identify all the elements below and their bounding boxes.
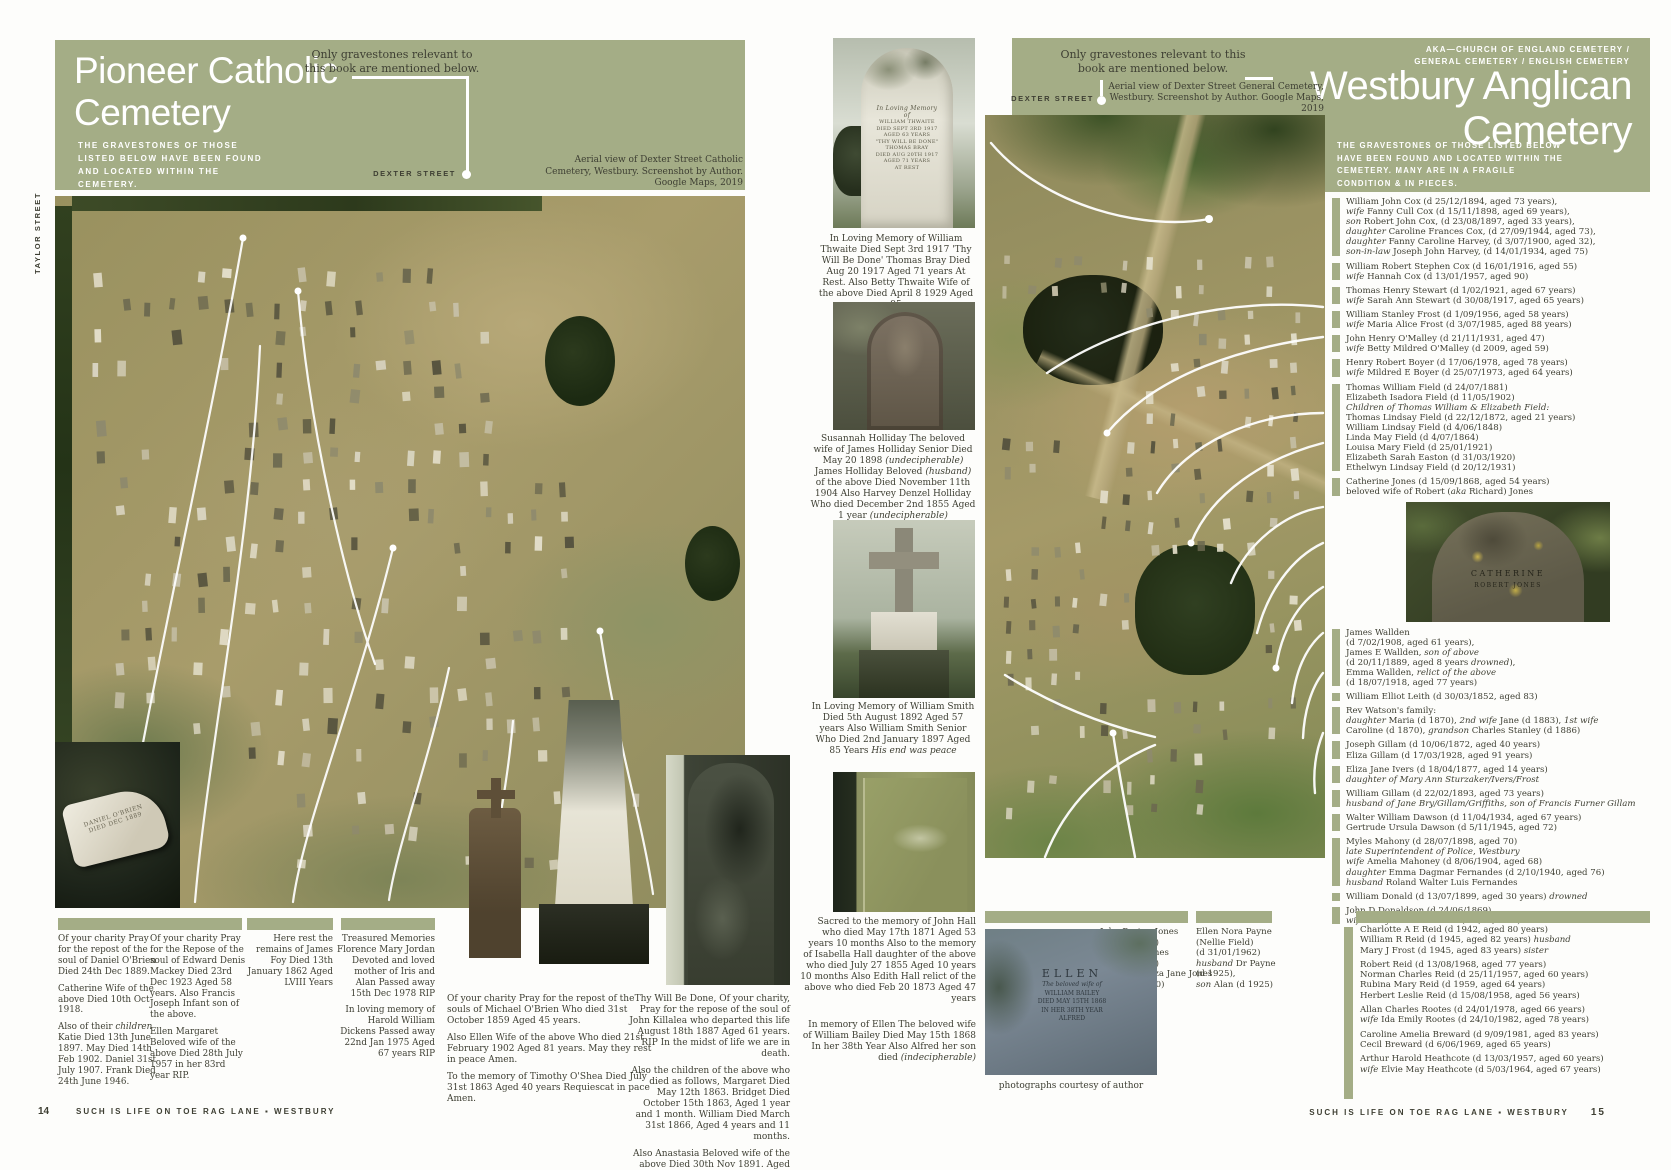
text-line: wife Ida Emily Rootes (d 24/10/1982, age… (1360, 1015, 1650, 1025)
footer-text: SUCH IS LIFE ON TOE RAG LANE ▪ WESTBURY (1309, 1108, 1568, 1117)
caption-bar (985, 911, 1157, 923)
text-line: William R Reid (d 1945, aged 82 years) h… (1360, 935, 1650, 945)
photo-smith-cross (833, 520, 975, 698)
text-line: Gertrude Ursula Dawson (d 5/11/1945, age… (1346, 823, 1652, 833)
text-line: wife Hannah Cox (d 13/01/1957, aged 90) (1346, 272, 1652, 282)
text-line: (d 20/11/1889, aged 8 years drowned), (1346, 658, 1652, 668)
anglican-gravestone-list: William John Cox (d 25/12/1894, aged 73 … (1332, 197, 1652, 930)
paragraph: Also Anastasia Beloved wife of the above… (627, 1149, 790, 1170)
page-number-left: 14 (38, 1106, 49, 1117)
text-line: Elizabeth Sarah Easton (d 31/03/1920) (1346, 453, 1652, 463)
caption-bar (1356, 911, 1650, 923)
text-line: wife Maria Alice Frost (d 3/07/1985, age… (1346, 320, 1652, 330)
text-line: Norman Charles Reid (d 25/11/1957, aged … (1360, 970, 1650, 980)
text-line: Elizabeth Isadora Field (d 11/05/1902) (1346, 393, 1652, 403)
paragraph: Catherine Wife of the above Died 10th Oc… (58, 984, 158, 1017)
caption-foy: Here rest the remains of James Foy Died … (243, 934, 333, 995)
gravestone: ELLENThe beloved wife ofWILLIAM BAILEYDI… (1001, 933, 1143, 1075)
list-entry: Thomas William Field (d 24/07/1881)Eliza… (1332, 383, 1652, 474)
stone-cross (477, 790, 515, 799)
paragraph: Of your charity Pray for the repost of t… (58, 934, 158, 978)
text-line: late Superintendent of Police, Westbury (1346, 847, 1652, 857)
list-entry: Joseph Gillam (d 10/06/1872, aged 40 yea… (1332, 740, 1652, 760)
text-line: IN HER 38TH YEAR (1001, 1007, 1143, 1016)
text-line: Arthur Harold Heathcote (d 13/03/1957, a… (1360, 1054, 1650, 1064)
caption-bar (1196, 911, 1272, 923)
photo-catherine-jones-stone: CATHERINEROBERT JONES (1406, 502, 1610, 622)
photo-daniel-obrien-fallen-stone: DANIEL O'BRIENDIED DEC 1889 (55, 742, 180, 908)
list-entry: William Stanley Frost (d 1/09/1956, aged… (1332, 310, 1652, 330)
right-callout: Only gravestones relevant to this book a… (1058, 48, 1248, 75)
caption-smith: In Loving Memory of William Smith Died 5… (810, 702, 976, 763)
caption-ellen-bailey: In memory of Ellen The beloved wife of W… (798, 1020, 976, 1070)
text-line: wife Fanny Cull Cox (d 15/11/1898, aged … (1346, 207, 1652, 217)
photo-killalea-stone (666, 755, 790, 985)
callout-connector-line (466, 76, 469, 174)
text-line: Ethelwyn Lindsay Field (d 20/12/1931) (1346, 463, 1652, 473)
paragraph: Also of their children Katie Died 13th J… (58, 1022, 158, 1087)
text-line: wife Amelia Mahoney (d 8/06/1904, aged 6… (1346, 857, 1652, 867)
text-line: Cecil Breward (d 6/06/1969, aged 65 year… (1360, 1040, 1650, 1050)
stone-cross (869, 552, 939, 569)
list-entry: William Elliot Leith (d 30/03/1852, aged… (1332, 692, 1652, 702)
text-line: Linda May Field (d 4/07/1864) (1346, 433, 1652, 443)
text-line: (d 1925), (1196, 969, 1276, 980)
text-line: William Lindsay Field (d 4/06/1848) (1346, 423, 1652, 433)
text-line: Walter William Dawson (d 11/04/1934, age… (1346, 813, 1652, 823)
text-line: Thomas Henry Stewart (d 1/02/1921, aged … (1346, 286, 1652, 296)
stone-cross (895, 528, 913, 614)
text-line: ELLEN (1001, 967, 1143, 981)
text-line: husband of Jane Bry/Gillam/Griffiths, so… (1346, 799, 1652, 809)
gravestone-base (871, 612, 937, 652)
text-line: Henry Robert Boyer (d 17/06/1978, aged 7… (1346, 358, 1652, 368)
text-line: William Donald (d 13/07/1899, aged 30 ye… (1346, 892, 1652, 902)
text-line: daughter Emma Dagmar Fernandes (d 2/10/1… (1346, 868, 1652, 878)
text-line: Robert Reid (d 13/08/1968, aged 77 years… (1360, 960, 1650, 970)
paragraph: Of your charity Pray for the Repose of t… (150, 934, 246, 1021)
text-line: wife Betty Mildred O'Malley (d 2009, age… (1346, 344, 1652, 354)
dexter-street-label: DEXTER STREET (372, 169, 456, 178)
text-line: Thomas William Field (d 24/07/1881) (1346, 383, 1652, 393)
text-line: daughter Caroline Frances Cox, (d 27/09/… (1346, 227, 1652, 237)
list-group: Allan Charles Rootes (d 24/01/1978, aged… (1360, 1005, 1650, 1026)
paragraph: Also the children of the above who died … (627, 1066, 790, 1143)
running-footer-left: SUCH IS LIFE ON TOE RAG LANE ▪ WESTBURY (76, 1107, 336, 1116)
text-line: Catherine Jones (d 15/09/1868, aged 54 y… (1346, 477, 1652, 487)
text-line: CATHERINE (1432, 568, 1584, 580)
caption-jordan-dickens: Treasured Memories Florence Mary Jordan … (337, 934, 435, 1066)
text-line: DIED MAY 15TH 1868 (1001, 998, 1143, 1007)
caption-bar (341, 918, 435, 930)
text-line: husband Roland Walter Luis Fernandes (1346, 878, 1652, 888)
list-entry: Walter William Dawson (d 11/04/1934, age… (1332, 813, 1652, 833)
paragraph: Ellen Margaret Beloved wife of the above… (150, 1027, 246, 1082)
gravestone: CATHERINEROBERT JONES (1432, 512, 1584, 622)
text-line: son Alan (d 1925) (1196, 980, 1276, 991)
text-line: Caroline Amelia Breward (d 9/09/1981, ag… (1360, 1030, 1650, 1040)
text-line: Thomas Lindsay Field (d 22/12/1872, aged… (1346, 413, 1652, 423)
text-line: wife Sarah Ann Stewart (d 30/08/1917, ag… (1346, 296, 1652, 306)
text-line: William Stanley Frost (d 1/09/1956, aged… (1346, 310, 1652, 320)
callout-connector-line (352, 76, 468, 79)
left-aerial-caption: Aerial view of Dexter Street Catholic Ce… (537, 155, 743, 190)
caption-obrien-family: Of your charity Pray for the repost of t… (58, 934, 158, 1094)
text-line: husband Dr Payne (1196, 959, 1276, 970)
list-entry: Rev Watson's family:daughter Maria (d 18… (1332, 706, 1652, 736)
gravestone (867, 312, 943, 430)
text-line: ROBERT JONES (1432, 580, 1584, 592)
list-entry: Henry Robert Boyer (d 17/06/1978, aged 7… (1332, 358, 1652, 378)
text-line: James E Wallden, son of above (1346, 648, 1652, 658)
text-line: Herbert Leslie Reid (d 15/08/1958, aged … (1360, 991, 1650, 1001)
list-entry: John Henry O'Malley (d 21/11/1931, aged … (1332, 334, 1652, 354)
list-group: Arthur Harold Heathcote (d 13/03/1957, a… (1360, 1054, 1650, 1075)
gravestone-plinth (859, 650, 949, 698)
text-line: (d 7/02/1908, aged 61 years), (1346, 638, 1652, 648)
left-callout: Only gravestones relevant to this book a… (302, 48, 482, 75)
photo-ellen-bailey-stone: ELLENThe beloved wife ofWILLIAM BAILEYDI… (985, 929, 1157, 1075)
text-line: William John Cox (d 25/12/1894, aged 73 … (1346, 197, 1652, 207)
text-line: (Nellie Field) (1196, 938, 1276, 949)
text-line: William Robert Stephen Cox (d 16/01/1916… (1346, 262, 1652, 272)
right-subtitle: THE GRAVESTONES OF THOSE LISTED BELOW HA… (1337, 140, 1565, 190)
stone-inscription: In Loving MemoryofWILLIAM THWAITEDIED SE… (861, 106, 953, 171)
text-line: WILLIAM BAILEY (1001, 990, 1143, 999)
list-entry: Myles Mahony (d 28/07/1898, aged 70)late… (1332, 837, 1652, 887)
text-line: Myles Mahony (d 28/07/1898, aged 70) (1346, 837, 1652, 847)
list-entry: Eliza Jane Ivers (d 18/04/1877, aged 14 … (1332, 765, 1652, 785)
dexter-street-label-right: DEXTER STREET (1002, 94, 1094, 103)
bottom-right-block: Charlotte A E Reid (d 1942, aged 80 year… (1360, 925, 1650, 1079)
text-line: wife Mildred E Boyer (d 25/07/1973, aged… (1346, 368, 1652, 378)
text-line: beloved wife of Robert (aka Richard) Jon… (1346, 487, 1652, 497)
right-aerial-caption: Aerial view of Dexter Street General Cem… (1098, 82, 1324, 115)
street-marker-dot (462, 170, 471, 179)
list-entry: William Donald (d 13/07/1899, aged 30 ye… (1332, 892, 1652, 902)
caption-payne-box: Ellen Nora Payne(Nellie Field)(d 31/01/1… (1196, 927, 1276, 991)
gravestone: In Loving MemoryofWILLIAM THWAITEDIED SE… (861, 48, 953, 228)
gravestone-obelisk (555, 700, 633, 906)
text-line: (d 18/07/1918, aged 77 years) (1346, 678, 1652, 688)
paragraph: Treasured Memories Florence Mary Jordan … (337, 934, 435, 999)
photo-hall-slab (833, 772, 975, 912)
taylor-street-label: TAYLOR STREET (33, 184, 42, 274)
text-line: Caroline (d 1870), grandson Charles Stan… (1346, 726, 1652, 736)
text-line: James Wallden (1346, 628, 1652, 638)
list-group: Caroline Amelia Breward (d 9/09/1981, ag… (1360, 1030, 1650, 1051)
text-line: AT REST (861, 165, 953, 172)
text-line: son-in-law Joseph John Harvey, (d 14/01/… (1346, 247, 1652, 257)
paragraph: Thy Will Be Done, Of your charity, Pray … (627, 994, 790, 1060)
text-line: Charlotte A E Reid (d 1942, aged 80 year… (1360, 925, 1650, 935)
caption-killalea: Thy Will Be Done, Of your charity, Pray … (627, 994, 790, 1170)
text-line: Rev Watson's family: (1346, 706, 1652, 716)
caption-mackey: Of your charity Pray for the Repose of t… (150, 934, 246, 1088)
paragraph: To the memory of Timothy O'Shea Died Jul… (447, 1072, 653, 1105)
gravestone-base (539, 904, 649, 964)
left-subtitle: THE GRAVESTONES OF THOSE LISTED BELOW HA… (78, 139, 278, 191)
book-spread: Pioneer Catholic Cemetery Only graveston… (0, 0, 1671, 1170)
text-line: daughter of Mary Ann Sturzaker/Ivers/Fro… (1346, 775, 1652, 785)
paragraph: Sacred to the memory of John Hall who di… (798, 917, 976, 1005)
gravestone: DANIEL O'BRIENDIED DEC 1889 (61, 783, 172, 869)
paragraph: In loving memory of Harold William Dicke… (337, 1005, 435, 1060)
text-line: Children of Thomas William & Elizabeth F… (1346, 403, 1652, 413)
list-entry: William Gillam (d 22/02/1893, aged 73 ye… (1332, 789, 1652, 809)
text-line: son Robert John Cox, (d 23/08/1897, aged… (1346, 217, 1652, 227)
caption-hall: Sacred to the memory of John Hall who di… (798, 917, 976, 1011)
text-line: John Henry O'Malley (d 21/11/1931, aged … (1346, 334, 1652, 344)
text-line: The beloved wife of (1001, 981, 1143, 990)
running-footer-right: SUCH IS LIFE ON TOE RAG LANE ▪ WESTBURY … (1250, 1107, 1606, 1118)
text-line: (d 31/01/1962) (1196, 948, 1276, 959)
text-line: Rubina Mary Reid (d 1959, aged 64 years) (1360, 980, 1650, 990)
list-entry: Thomas Henry Stewart (d 1/02/1921, aged … (1332, 286, 1652, 306)
list-group: Charlotte A E Reid (d 1942, aged 80 year… (1360, 925, 1650, 956)
caption-michael-obrien: Of your charity Pray for the repost of t… (447, 994, 653, 1111)
photo-thwaite-stone: In Loving MemoryofWILLIAM THWAITEDIED SE… (833, 38, 975, 228)
caption-bar (58, 918, 154, 930)
gravestone (469, 808, 521, 958)
text-line: Emma Wallden, relict of the above (1346, 668, 1652, 678)
photo-michael-obrien-oshea-stones (447, 700, 658, 986)
gravestone (863, 778, 967, 912)
paragraph: In Loving Memory of William Smith Died 5… (810, 702, 976, 757)
page-number-right: 15 (1591, 1107, 1606, 1118)
text-line: William Gillam (d 22/02/1893, aged 73 ye… (1346, 789, 1652, 799)
stone-inscription: DANIEL O'BRIENDIED DEC 1889 (66, 797, 164, 841)
text-line: Eliza Gillam (d 17/03/1928, aged 91 year… (1346, 751, 1652, 761)
aerial-photo-anglican-cemetery (985, 115, 1325, 858)
caption-bar (150, 918, 242, 930)
graves-layer (985, 115, 1325, 858)
caption-side-bar (1344, 927, 1353, 1099)
list-entry: James Wallden(d 7/02/1908, aged 61 years… (1332, 628, 1652, 689)
text-line: Louisa Mary Field (d 25/01/1921) (1346, 443, 1652, 453)
paragraph: Of your charity Pray for the repost of t… (447, 994, 653, 1027)
text-line: Ellen Nora Payne (1196, 927, 1276, 938)
callout-connector-line (1245, 77, 1273, 80)
text-line: ALFRED (1001, 1015, 1143, 1024)
photo-holliday-stone (833, 302, 975, 430)
text-line: Allan Charles Rootes (d 24/01/1978, aged… (1360, 1005, 1650, 1015)
paragraph: Susannah Holliday The beloved wife of Ja… (810, 434, 976, 522)
text-line: daughter Maria (d 1870), 2nd wife Jane (… (1346, 716, 1652, 726)
paragraph: Here rest the remains of James Foy Died … (243, 934, 333, 989)
list-group: Robert Reid (d 13/08/1968, aged 77 years… (1360, 960, 1650, 1001)
gravestone (688, 763, 774, 985)
text-line: Mary J Frost (d 1945, aged 83 years) sis… (1360, 946, 1650, 956)
caption-bar (247, 918, 333, 930)
list-entry: William Robert Stephen Cox (d 16/01/1916… (1332, 262, 1652, 282)
text-line: wife Elvie May Heathcote (d 5/03/1964, a… (1360, 1065, 1650, 1075)
stone-inscription: CATHERINEROBERT JONES (1432, 568, 1584, 592)
text-line: William Elliot Leith (d 30/03/1852, aged… (1346, 692, 1652, 702)
paragraph: Also Ellen Wife of the above Who died 21… (447, 1033, 653, 1066)
list-entry: William John Cox (d 25/12/1894, aged 73 … (1332, 197, 1652, 258)
caption-holliday: Susannah Holliday The beloved wife of Ja… (810, 434, 976, 528)
list-entry: Catherine Jones (d 15/09/1868, aged 54 y… (1332, 477, 1652, 497)
aka-line-1: AKA—CHURCH OF ENGLAND CEMETERY / (1340, 44, 1630, 56)
paragraph: In Loving Memory of William Thwaite Died… (816, 234, 976, 311)
paragraph: In memory of Ellen The beloved wife of W… (798, 1020, 976, 1064)
text-line: Joseph Gillam (d 10/06/1872, aged 40 yea… (1346, 740, 1652, 750)
photo-credit: photographs courtesy of author (985, 1081, 1157, 1091)
text-line: daughter Fanny Caroline Harvey, (d 3/07/… (1346, 237, 1652, 247)
text-line: Eliza Jane Ivers (d 18/04/1877, aged 14 … (1346, 765, 1652, 775)
stone-inscription: ELLENThe beloved wife ofWILLIAM BAILEYDI… (1001, 967, 1143, 1024)
